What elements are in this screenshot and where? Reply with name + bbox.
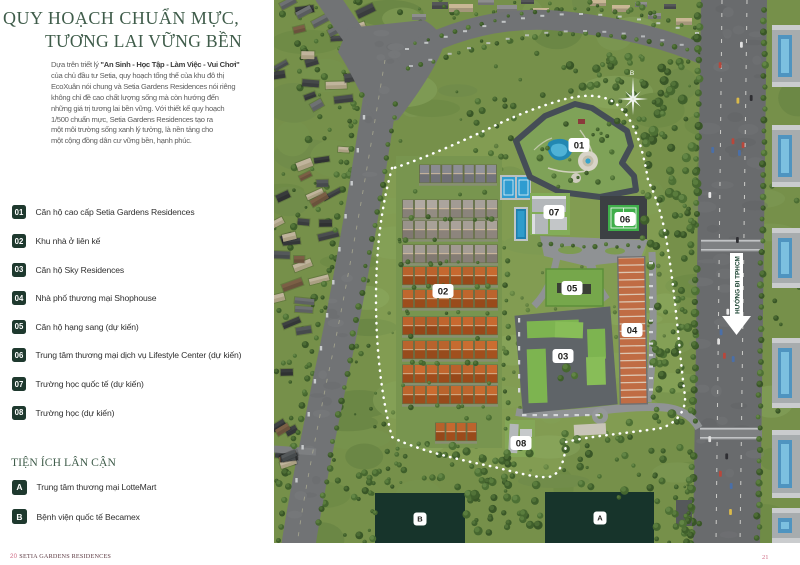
svg-text:HƯỚNG ĐI TPHCM: HƯỚNG ĐI TPHCM [733, 256, 742, 314]
svg-text:B: B [417, 515, 423, 524]
svg-text:03: 03 [558, 351, 569, 362]
svg-text:06: 06 [620, 214, 631, 225]
svg-text:07: 07 [549, 207, 560, 218]
svg-text:02: 02 [438, 286, 449, 297]
svg-text:04: 04 [627, 325, 638, 336]
svg-text:01: 01 [574, 140, 585, 151]
svg-text:08: 08 [516, 438, 527, 449]
svg-text:A: A [597, 514, 603, 523]
svg-text:05: 05 [567, 283, 578, 294]
svg-text:B: B [630, 70, 634, 77]
